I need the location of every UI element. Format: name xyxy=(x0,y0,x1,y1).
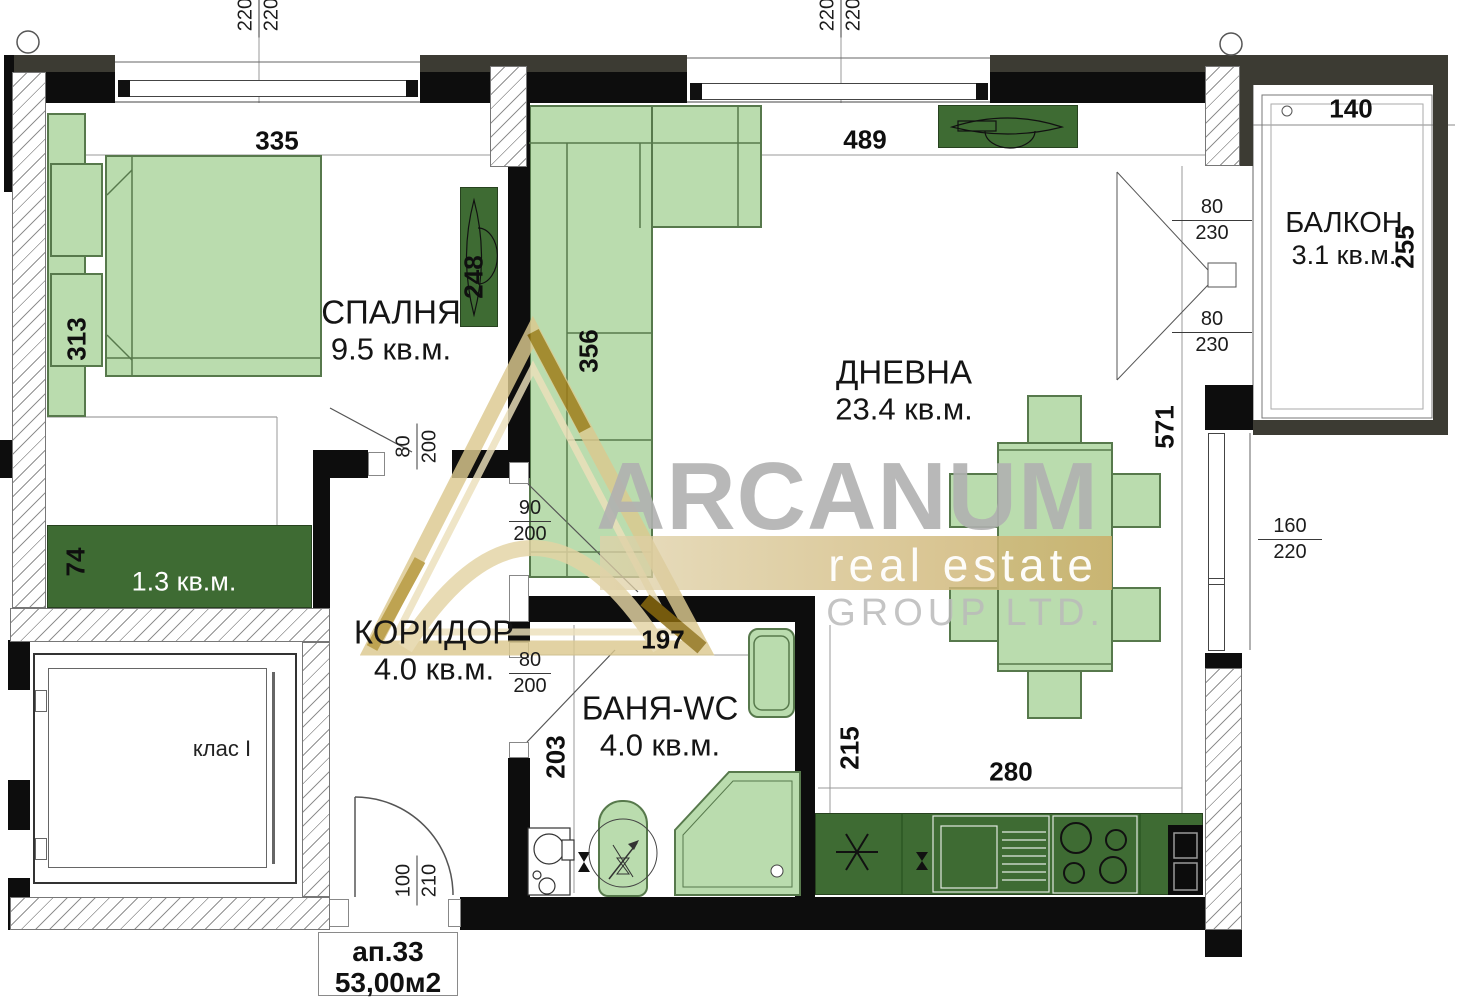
dim-window2: 220220 xyxy=(818,0,865,38)
watermark-band: real estate xyxy=(600,536,1112,590)
dim-entry-door: 100210 xyxy=(394,856,441,906)
dim-balcony-door-bottom: 80230 xyxy=(1172,309,1252,356)
toilet-detail-icon xyxy=(589,819,657,887)
apartment-area: 53,00м2 xyxy=(319,968,457,999)
faucet-valve-icon xyxy=(916,852,928,870)
room-label-bathroom: БАНЯ-WC 4.0 кв.м. xyxy=(582,690,739,763)
dim-side-window: 160220 xyxy=(1258,516,1322,563)
axis-point-icon xyxy=(1282,106,1292,116)
room-label-corridor: КОРИДОР 4.0 кв.м. xyxy=(354,614,514,687)
dim-balcony-depth: 255 xyxy=(1390,225,1421,268)
dim-bed: 313 xyxy=(62,317,93,360)
dim-kitchen-depth: 215 xyxy=(835,726,866,769)
watermark-tagline: real estate xyxy=(828,538,1098,592)
dim-wardrobe-depth: 74 xyxy=(61,548,92,577)
apartment-stamp: ап.33 53,00м2 xyxy=(318,932,458,996)
floor-plan: ARCANUM real estate GROUP LTD. СПАЛНЯ 9.… xyxy=(0,0,1462,1000)
dim-window1: 220220 xyxy=(236,0,283,38)
dim-balcony-door-top: 80230 xyxy=(1172,197,1252,244)
wardrobe-area-label: 1.3 кв.м. xyxy=(132,567,237,598)
dim-bath-door: 80200 xyxy=(509,650,551,697)
room-label-bedroom: СПАЛНЯ 9.5 кв.м. xyxy=(321,294,461,367)
dim-living-width: 489 xyxy=(843,125,886,156)
dim-balcony-width: 140 xyxy=(1329,94,1372,125)
dim-kitchen-width: 280 xyxy=(989,757,1032,788)
tv-icon-living xyxy=(952,118,1062,148)
bed-detail-lines xyxy=(107,157,320,375)
axis-bubble-icon xyxy=(17,31,39,53)
dim-living-opening: 90200 xyxy=(509,498,551,545)
elevator-class-label: клас I xyxy=(193,736,251,762)
dim-sofa: 356 xyxy=(574,329,605,372)
washing-machine-drum-icon xyxy=(754,636,789,710)
counter-divider-lines xyxy=(902,813,1140,895)
bath-sink-icon xyxy=(528,828,574,895)
shower-icon xyxy=(675,772,800,895)
apartment-number: ап.33 xyxy=(319,937,457,968)
room-label-balcony: БАЛКОН 3.1 кв.м. xyxy=(1285,207,1402,271)
lamp-star-icon xyxy=(836,834,878,870)
dim-bedroom-door: 80200 xyxy=(394,424,441,470)
fridge-detail-icon xyxy=(1174,833,1197,890)
dim-tv-cabinet: 248 xyxy=(459,255,490,298)
dim-living-depth: 571 xyxy=(1150,405,1181,448)
kitchen-sink-icon xyxy=(933,816,1049,892)
dim-bath-width: 197 xyxy=(641,625,684,656)
room-label-living: ДНЕВНА 23.4 кв.м. xyxy=(835,354,973,427)
dim-bedroom-width: 335 xyxy=(255,126,298,157)
axis-bubble-icon xyxy=(1220,33,1242,55)
stove-icon xyxy=(1053,816,1137,893)
dim-bath-depth: 203 xyxy=(541,735,572,778)
water-valve-icon xyxy=(578,852,590,872)
watermark-subtitle: GROUP LTD. xyxy=(655,592,1105,635)
